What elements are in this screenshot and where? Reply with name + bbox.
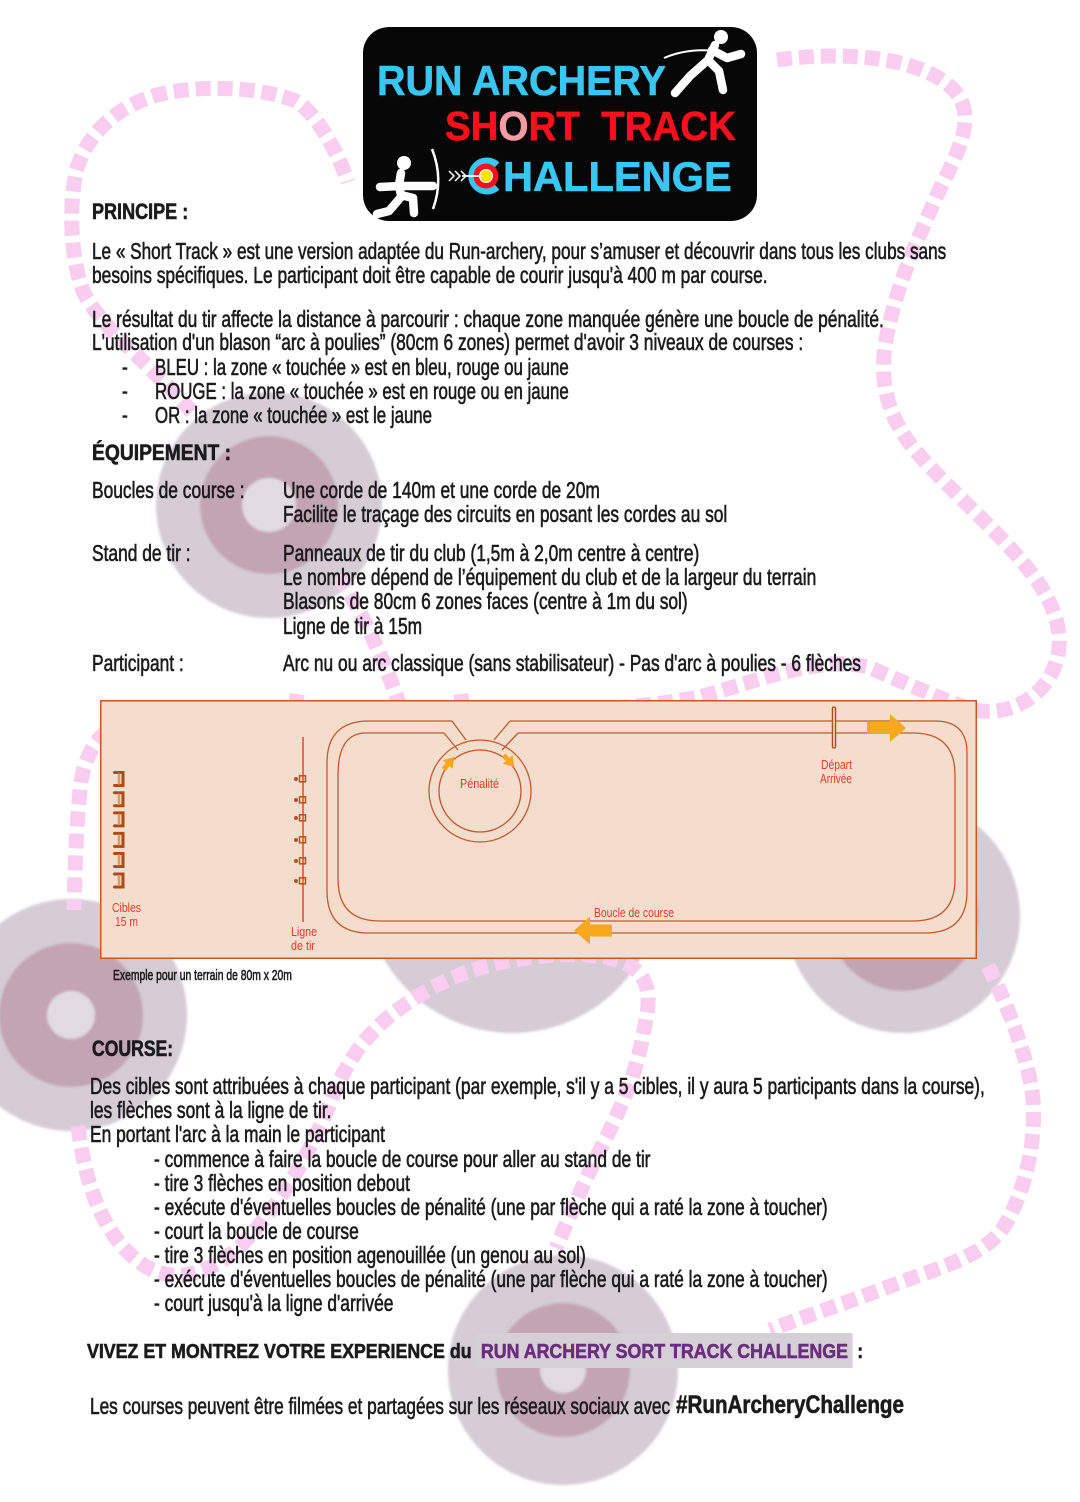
svg-text:de tir: de tir — [291, 938, 316, 953]
svg-text:Ligne: Ligne — [291, 924, 317, 939]
svg-text:Cibles: Cibles — [112, 900, 141, 915]
svg-text:Arrivée: Arrivée — [820, 771, 852, 786]
svg-text:15 m: 15 m — [115, 914, 138, 929]
svg-text:Boucle de course: Boucle de course — [594, 905, 674, 920]
svg-text:Pénalité: Pénalité — [460, 776, 499, 791]
svg-text:Départ: Départ — [821, 757, 852, 772]
